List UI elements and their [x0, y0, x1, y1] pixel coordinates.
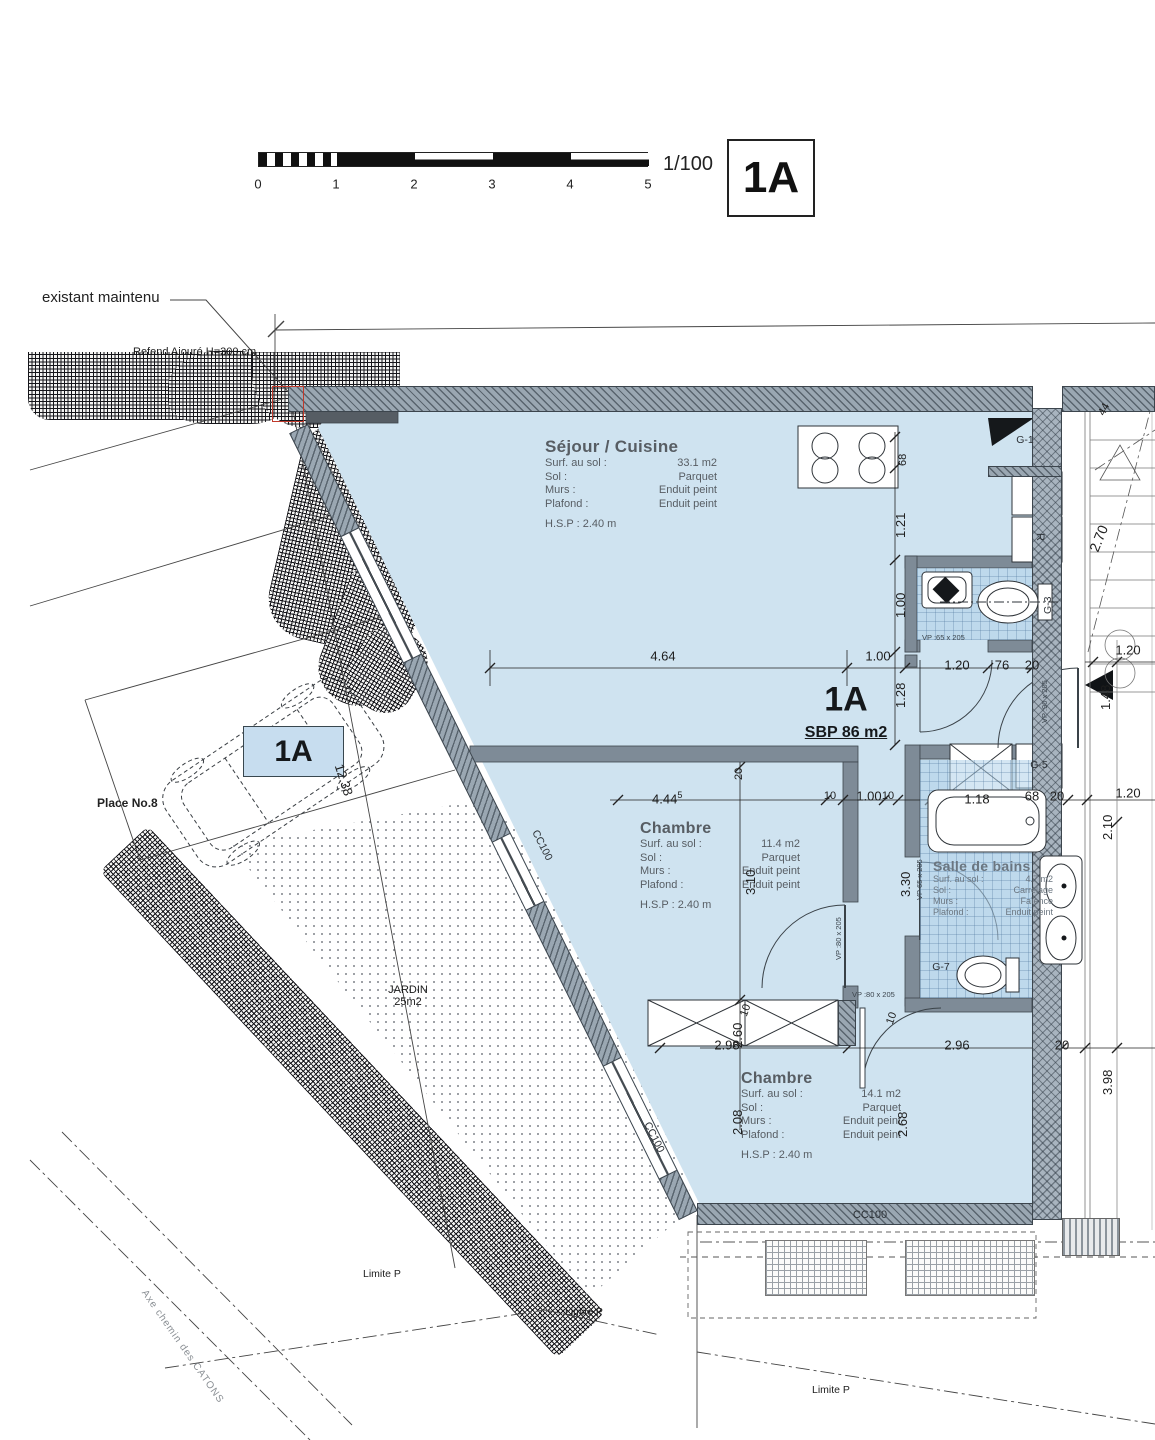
dim-268: 2.68	[895, 1112, 910, 1137]
jardin-area: 25m2	[388, 996, 428, 1008]
value: Enduit peint	[659, 484, 717, 498]
dim-bath-118: 1.18	[964, 792, 989, 807]
room-chambre1-hsp: H.S.P : 2.40 m	[640, 899, 800, 911]
dim-ext-top: 1.20	[1115, 643, 1140, 658]
sheet-unit-badge: 1A	[727, 139, 815, 217]
dim-ch2-l: 2.98	[714, 1038, 739, 1053]
label: Murs :	[545, 484, 576, 498]
vp-80-ch1: VP :80 x 205	[834, 917, 843, 960]
value: Faïence	[1020, 896, 1053, 907]
dim-210: 2.10	[1100, 815, 1115, 840]
parking-unit-badge-label: 1A	[274, 735, 312, 769]
limite-p-3: Limite P	[812, 1384, 850, 1396]
room-chambre2-title: Chambre	[741, 1070, 901, 1088]
dim-398: 3.98	[1100, 1070, 1115, 1095]
value: Enduit peint	[1005, 907, 1053, 918]
value: 4.7 m2	[1025, 874, 1053, 885]
value: Enduit peint	[659, 498, 717, 512]
refend-label: Refend Ajouré H=300 cm	[133, 346, 256, 358]
room-bains-info: Salle de bains Surf. au sol :4.7 m2 Sol …	[933, 858, 1053, 918]
dim-128: 1.28	[893, 683, 908, 708]
scale-seg-0	[259, 153, 337, 166]
dim-20b: 20	[1050, 789, 1064, 804]
scale-seg-2	[415, 153, 493, 166]
label: Plafond :	[933, 907, 969, 918]
dim-76: 76	[995, 658, 1009, 673]
value: 14.1 m2	[861, 1088, 901, 1102]
jardin-title: JARDIN	[388, 984, 428, 996]
value: Enduit peint	[843, 1115, 901, 1129]
parking-unit-badge: 1A	[243, 726, 344, 777]
vp-80-ch2: VP :80 x 205	[852, 990, 895, 999]
room-chambre1-title: Chambre	[640, 820, 800, 838]
value: 33.1 m2	[677, 457, 717, 471]
label: Sol :	[640, 852, 662, 866]
vp-90-entry: VP :90 x 205	[1040, 680, 1049, 723]
dim-20a: 20	[1025, 658, 1039, 673]
place-no-label: Place No.8	[97, 796, 158, 810]
dim-ch2-w: 2.96	[944, 1038, 969, 1053]
unit-name: 1A	[824, 681, 867, 720]
dim-ext-mid: 1.20	[1115, 786, 1140, 801]
dim-310: 3.10	[743, 870, 758, 895]
dim-330: 3.30	[898, 872, 913, 897]
value: Enduit peint	[843, 1129, 901, 1143]
dim-148: 1.48	[1098, 685, 1113, 710]
value: Parquet	[678, 471, 717, 485]
vp-65-wc: VP :65 x 205	[922, 633, 965, 642]
dim-68: 68	[897, 454, 909, 466]
scale-seg-3	[493, 153, 571, 166]
cc100-bottom: CC100	[853, 1209, 887, 1221]
dim-68b: 68	[1025, 789, 1039, 804]
dim-hall-w: 1.00	[865, 649, 890, 664]
label: Plafond :	[640, 879, 683, 893]
dim-10b: 10	[882, 790, 894, 802]
label: Sol :	[545, 471, 567, 485]
scale-seg-1	[337, 153, 415, 166]
label: Surf. au sol :	[545, 457, 607, 471]
room-bains-title: Salle de bains	[933, 858, 1053, 874]
scale-bar	[258, 152, 648, 167]
dim-door-120: 1.20	[944, 658, 969, 673]
room-chambre1-info: Chambre Surf. au sol :11.4 m2 Sol :Parqu…	[640, 820, 800, 911]
vp-65-bath: VP 65 x 205	[915, 859, 924, 900]
room-sejour-hsp: H.S.P : 2.40 m	[545, 518, 717, 530]
label: Surf. au sol :	[933, 874, 984, 885]
dim-ch1-w: 4.445	[652, 790, 682, 806]
room-sejour-info: Séjour / Cuisine Surf. au sol :33.1 m2 S…	[545, 437, 717, 530]
value: 11.4 m2	[761, 838, 800, 852]
floor-plan-canvas: 0 1 2 3 4 5 1/100 1A existant maintenu R…	[0, 0, 1155, 1440]
label: Murs :	[741, 1115, 772, 1129]
value: Carrelage	[1013, 885, 1053, 896]
equip-g1: G-1	[1016, 434, 1034, 446]
dim-20v: 20	[733, 768, 745, 780]
dim-ch1-w-sup: 5	[677, 790, 682, 800]
dim-20c: 20	[1055, 1038, 1069, 1053]
equip-g7: G-7	[932, 961, 950, 973]
equip-r: R	[1034, 533, 1046, 541]
room-sejour-title: Séjour / Cuisine	[545, 437, 717, 457]
label: Surf. au sol :	[640, 838, 702, 852]
limite-p-1: Limite P	[363, 1268, 401, 1280]
dim-mid-100: 1.00	[856, 789, 881, 804]
equip-g3: G-3	[1042, 596, 1054, 614]
existant-maintenu-label: existant maintenu	[42, 289, 160, 306]
label: Plafond :	[741, 1129, 784, 1143]
scale-seg-4	[571, 153, 649, 166]
room-chambre2-info: Chambre Surf. au sol :14.1 m2 Sol :Parqu…	[741, 1070, 901, 1161]
value: Parquet	[761, 852, 800, 866]
label: Murs :	[640, 865, 671, 879]
dim-sejour-w: 4.64	[650, 649, 675, 664]
dim-208: 2.08	[730, 1110, 745, 1135]
dim-121: 1.21	[893, 513, 908, 538]
wet-fixtures	[0, 0, 1155, 1440]
label: Surf. au sol :	[741, 1088, 803, 1102]
unit-sbp: SBP 86 m2	[805, 724, 887, 742]
limite-p-2: Limite P	[565, 1306, 603, 1318]
dim-100v: 1.00	[893, 593, 908, 618]
equip-g5: G-5	[1030, 759, 1048, 771]
dim-10a: 10	[824, 790, 836, 802]
room-chambre2-hsp: H.S.P : 2.40 m	[741, 1149, 901, 1161]
label: Murs :	[933, 896, 958, 907]
label: Sol :	[933, 885, 951, 896]
jardin-label: JARDIN 25m2	[388, 984, 428, 1008]
sheet-unit-badge-label: 1A	[743, 153, 799, 203]
label: Plafond :	[545, 498, 588, 512]
dim-ch1-w-value: 4.44	[652, 791, 677, 806]
